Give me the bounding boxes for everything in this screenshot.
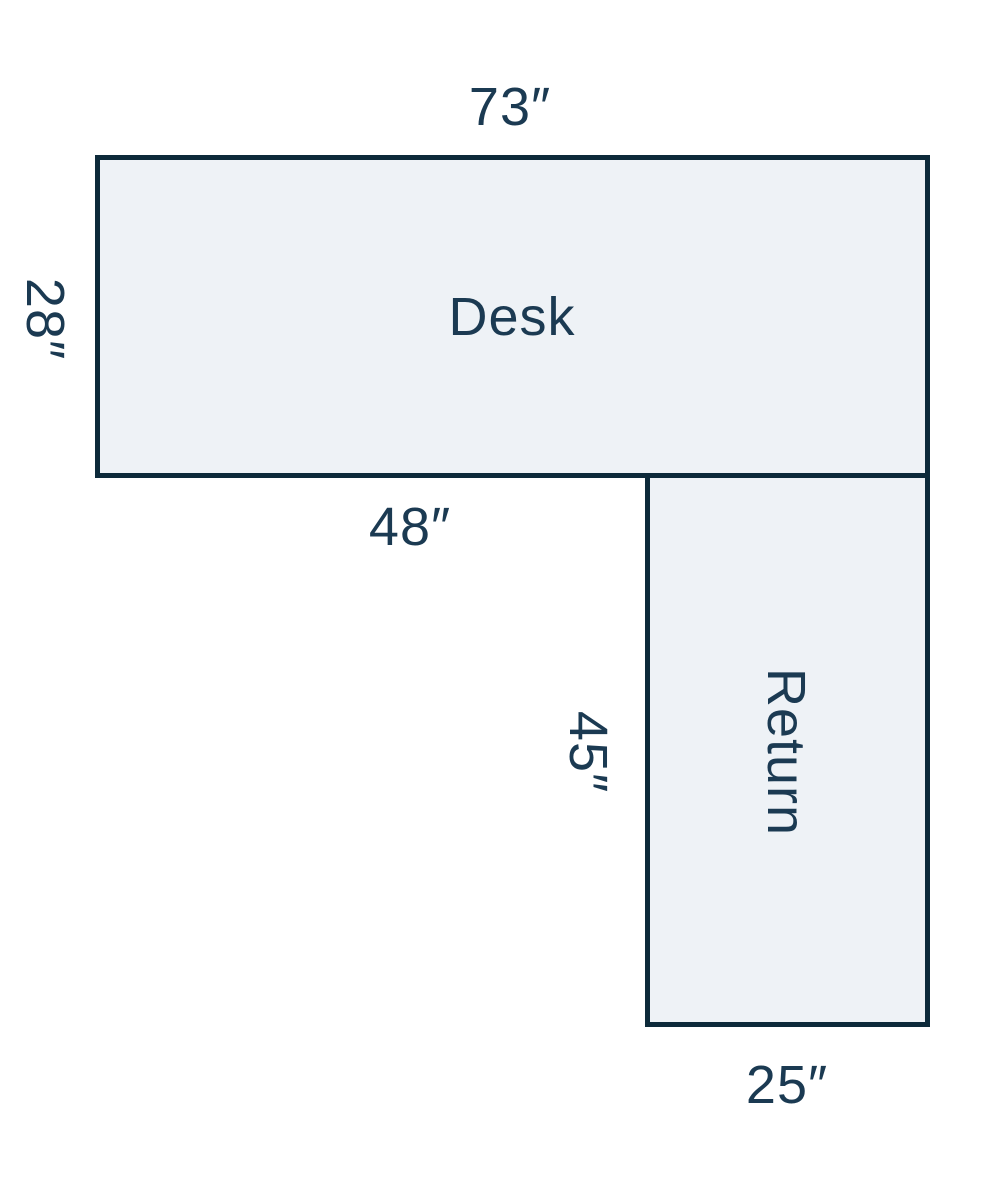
desk-top-dimension-label: 73″	[469, 76, 551, 138]
return-label: Return	[755, 668, 817, 836]
return-bottom-dimension-label: 25″	[746, 1054, 828, 1116]
desk-layout-diagram: 73″ Desk 28″ 48″ Return 45″ 25″	[0, 0, 1000, 1200]
desk-bottom-dimension-label: 48″	[369, 496, 451, 558]
desk-left-dimension-label: 28″	[14, 278, 76, 360]
return-left-dimension-label: 45″	[557, 711, 619, 793]
desk-label: Desk	[448, 286, 575, 348]
